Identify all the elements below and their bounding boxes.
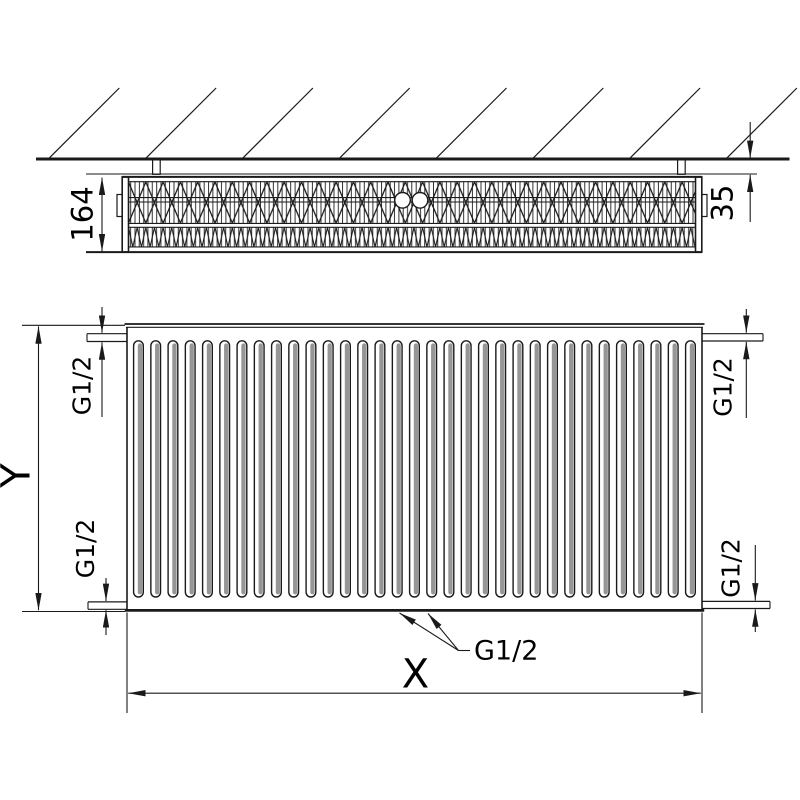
groove-shadow xyxy=(690,343,694,594)
hatch-line xyxy=(49,88,119,158)
groove-shadow xyxy=(172,343,176,594)
dim-label-Y: Y xyxy=(0,463,40,489)
groove-shadow xyxy=(466,343,470,594)
dim-wall-35: 35 xyxy=(706,122,751,222)
drawing-canvas: 164 35 xyxy=(0,0,800,800)
wall-hatching xyxy=(49,88,797,158)
groove-shadow xyxy=(535,343,539,594)
dim-label-164: 164 xyxy=(66,186,100,241)
groove-shadow xyxy=(414,343,418,594)
groove-shadow xyxy=(431,343,435,594)
hatch-line xyxy=(436,88,506,158)
valve-detail-right-circle xyxy=(412,193,428,209)
groove-shadow xyxy=(500,343,504,594)
radiator-technical-drawing: 164 35 xyxy=(0,0,800,800)
groove-shadow xyxy=(207,343,211,594)
conn-label-top-left: G1/2 xyxy=(68,356,97,416)
conn-label-bottom-left: G1/2 xyxy=(71,519,100,579)
dim-depth-164: 164 xyxy=(66,178,103,252)
dim-conn-bottom-right: G1/2 xyxy=(717,538,756,632)
hatch-line xyxy=(339,88,409,158)
groove-shadow xyxy=(310,343,314,594)
dim-conn-bottom-left: G1/2 xyxy=(71,519,106,635)
groove-shadow xyxy=(328,343,332,594)
dim-conn-top-right: G1/2 xyxy=(709,309,747,418)
conn-label-bottom-right: G1/2 xyxy=(717,538,746,598)
groove-shadow xyxy=(552,343,556,594)
groove-shadow xyxy=(293,343,297,594)
groove-shadow xyxy=(621,343,625,594)
leader-arrow-left xyxy=(400,613,459,651)
groove-shadow xyxy=(259,343,263,594)
groove-shadow xyxy=(241,343,245,594)
groove-shadow xyxy=(604,343,608,594)
groove-shadow xyxy=(276,343,280,594)
groove-shadow xyxy=(224,343,228,594)
stub-top-right xyxy=(702,334,763,341)
groove-shadow xyxy=(586,343,590,594)
dim-label-35: 35 xyxy=(706,185,740,222)
groove-shadow xyxy=(448,343,452,594)
conn-label-top-right: G1/2 xyxy=(709,357,738,417)
wall-bracket-left xyxy=(153,160,161,175)
groove-shadow xyxy=(517,343,521,594)
groove-shadow xyxy=(569,343,573,594)
stub-bottom-left xyxy=(88,602,127,609)
conn-label-bottom-center: G1/2 xyxy=(474,636,538,667)
front-view: Y X G1/2 G1/2 G1/2 G1/2 xyxy=(0,307,770,713)
radiator-section-body xyxy=(86,177,707,252)
dim-height-Y: Y xyxy=(0,325,125,611)
side-view: 164 35 xyxy=(36,88,797,252)
dim-conn-top-left: G1/2 xyxy=(68,307,103,417)
groove-shadow xyxy=(138,343,142,594)
convector-fins-lower xyxy=(129,228,696,248)
hatch-line xyxy=(630,88,700,158)
groove-shadow xyxy=(155,343,159,594)
groove-shadow xyxy=(483,343,487,594)
hatch-line xyxy=(146,88,216,158)
groove-shadow xyxy=(345,343,349,594)
leader-arrow-right xyxy=(428,614,459,651)
groove-shadow xyxy=(190,343,194,594)
groove-shadow xyxy=(673,343,677,594)
hatch-line xyxy=(243,88,313,158)
valve-detail-left-circle xyxy=(395,193,411,209)
stub-top-left xyxy=(87,334,127,342)
groove-shadow xyxy=(638,343,642,594)
groove-shadow xyxy=(362,343,366,594)
groove-shadow xyxy=(397,343,401,594)
groove-shadow xyxy=(655,343,659,594)
wall-bracket-right xyxy=(678,160,686,175)
stub-bottom-right xyxy=(702,601,770,608)
dim-width-X: X xyxy=(127,613,702,714)
hatch-line xyxy=(727,88,797,158)
hatch-line xyxy=(533,88,603,158)
groove-shadow xyxy=(379,343,383,594)
dim-label-X: X xyxy=(402,652,429,698)
